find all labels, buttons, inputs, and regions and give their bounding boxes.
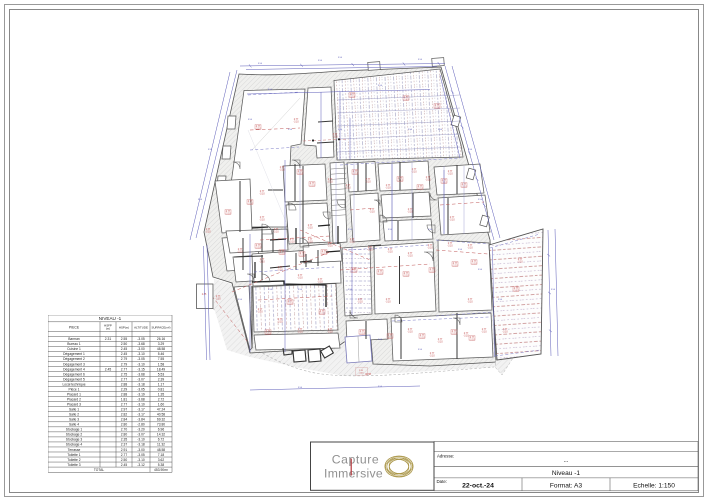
svg-text:-3.07: -3.07: [137, 377, 145, 381]
svg-text:-3.10: -3.10: [277, 270, 283, 272]
svg-text:2.77: 2.77: [121, 367, 128, 371]
svg-text:Toilette 3: Toilette 3: [67, 463, 80, 467]
svg-text:Echelle: 1:150: Echelle: 1:150: [633, 483, 675, 490]
svg-text:TOTAL: TOTAL: [94, 468, 104, 472]
svg-text:2.77: 2.77: [121, 453, 128, 457]
svg-text:1.81: 1.81: [121, 397, 128, 401]
svg-text:-3.20: -3.20: [137, 428, 145, 432]
svg-text:-3.10: -3.10: [307, 242, 313, 244]
svg-text:-3.10: -3.10: [345, 188, 351, 190]
svg-text:-3.10: -3.10: [513, 291, 519, 293]
svg-text:-3.10: -3.10: [287, 304, 293, 306]
svg-text:Placard 3: Placard 3: [67, 402, 81, 406]
svg-text:-3.10: -3.10: [247, 204, 253, 206]
svg-text:-3.10: -3.10: [279, 254, 285, 256]
svg-text:3.50: 3.50: [318, 60, 323, 62]
svg-text:-3.68: -3.68: [137, 397, 145, 401]
svg-text:NIVEAU -1: NIVEAU -1: [99, 316, 122, 321]
svg-text:-3.05: -3.05: [137, 357, 145, 361]
svg-text:3.50: 3.50: [198, 199, 203, 201]
svg-text:-3.10: -3.10: [365, 182, 371, 184]
svg-text:-3.10: -3.10: [293, 122, 299, 124]
svg-text:1.35: 1.35: [158, 392, 165, 396]
svg-text:-3.10: -3.10: [437, 342, 443, 344]
svg-text:0.81: 0.81: [158, 387, 165, 391]
svg-text:3.62: 3.62: [158, 458, 165, 462]
svg-text:-3.10: -3.10: [367, 250, 373, 252]
svg-text:3.50: 3.50: [208, 149, 213, 151]
svg-text:-3.10: -3.10: [297, 174, 303, 176]
svg-text:-2.80: -2.80: [137, 423, 145, 427]
svg-text:69.32: 69.32: [157, 418, 165, 422]
svg-text:-3.10: -3.10: [352, 174, 358, 176]
svg-text:-3.10: -3.10: [425, 180, 431, 182]
svg-text:-3.10: -3.10: [259, 262, 265, 264]
svg-text:2.88: 2.88: [121, 382, 128, 386]
svg-text:-3.10: -3.10: [259, 194, 265, 196]
svg-text:SURFACE(m²): SURFACE(m²): [152, 326, 171, 330]
svg-text:2.75: 2.75: [121, 372, 128, 376]
svg-text:-3.05: -3.05: [137, 453, 145, 457]
svg-text:2.55: 2.55: [121, 337, 128, 341]
svg-text:Salle 4: Salle 4: [69, 423, 79, 427]
svg-text:22-oct.-24: 22-oct.-24: [462, 483, 494, 490]
svg-text:7.55: 7.55: [158, 357, 165, 361]
svg-text:-3.10: -3.10: [481, 332, 487, 334]
svg-text:3.50: 3.50: [468, 149, 473, 151]
svg-text:-3.10: -3.10: [137, 438, 145, 442]
svg-text:-3.10: -3.10: [321, 254, 327, 256]
svg-text:Niveau -1: Niveau -1: [552, 470, 581, 477]
svg-text:2.97: 2.97: [121, 408, 128, 412]
svg-text:2.80: 2.80: [121, 423, 128, 427]
svg-text:14.32: 14.32: [157, 433, 165, 437]
svg-text:3.50: 3.50: [258, 63, 263, 65]
svg-text:-3.10: -3.10: [369, 212, 375, 214]
svg-text:-3.10: -3.10: [137, 352, 145, 356]
svg-text:-3.10: -3.10: [517, 262, 523, 264]
svg-text:-3.10: -3.10: [297, 332, 303, 334]
svg-text:-3.10: -3.10: [447, 246, 453, 248]
svg-text:-3.10: -3.10: [277, 322, 283, 324]
svg-text:-3.10: -3.10: [417, 189, 423, 191]
svg-text:-3.84: -3.84: [137, 418, 145, 422]
svg-text:-3.10: -3.10: [255, 248, 261, 250]
svg-text:Dégagement 6: Dégagement 6: [63, 372, 85, 376]
svg-text:Bureau 1: Bureau 1: [67, 342, 81, 346]
svg-text:2.45: 2.45: [121, 463, 128, 467]
svg-text:Toilette 1: Toilette 1: [67, 453, 80, 457]
svg-text:Salle 3: Salle 3: [69, 418, 79, 422]
svg-text:2.70: 2.70: [121, 428, 128, 432]
svg-text:-3.10: -3.10: [137, 458, 145, 462]
svg-text:-3.10: -3.10: [309, 186, 315, 188]
svg-text:-3.10: -3.10: [447, 174, 453, 176]
svg-text:2.88: 2.88: [121, 392, 128, 396]
svg-text:-3.10: -3.10: [403, 100, 409, 102]
svg-text:11.32: 11.32: [157, 443, 165, 447]
svg-text:-3.18: -3.18: [137, 382, 145, 386]
svg-text:-3.10: -3.10: [403, 276, 409, 278]
svg-text:-3.68: -3.68: [137, 372, 145, 376]
svg-text:-3.10: -3.10: [317, 282, 323, 284]
svg-text:73.80: 73.80: [157, 423, 165, 427]
svg-text:2.29: 2.29: [121, 387, 128, 391]
svg-text:-3.10: -3.10: [349, 97, 355, 99]
svg-text:-3.10: -3.10: [434, 108, 440, 110]
svg-text:-3.10: -3.10: [387, 252, 393, 254]
svg-text:-3.10: -3.10: [332, 137, 338, 139]
svg-text:48.58: 48.58: [365, 374, 371, 376]
svg-text:ALTITUDE: ALTITUDE: [134, 326, 148, 330]
svg-text:-3.10: -3.10: [407, 256, 413, 258]
svg-text:-3.18: -3.18: [137, 443, 145, 447]
svg-text:2.79: 2.79: [121, 357, 128, 361]
svg-text:-3.10: -3.10: [327, 246, 333, 248]
svg-text:PIECE: PIECE: [69, 326, 80, 330]
svg-text:5.53: 5.53: [158, 372, 165, 376]
svg-text:Placard 2: Placard 2: [67, 397, 81, 401]
svg-text:Stockage 2: Stockage 2: [66, 433, 83, 437]
svg-text:-3.10: -3.10: [429, 356, 435, 358]
svg-text:-3.10: -3.10: [449, 220, 455, 222]
svg-text:1.17: 1.17: [158, 382, 165, 386]
svg-text:-3.10: -3.10: [205, 232, 211, 234]
svg-text:-3.10: -3.10: [419, 338, 425, 340]
svg-text:Stockage 1: Stockage 1: [66, 428, 83, 432]
svg-text:-3.10: -3.10: [137, 362, 145, 366]
svg-text:-3.10: -3.10: [255, 129, 261, 131]
svg-text:2.91: 2.91: [121, 448, 128, 452]
svg-text:2.45: 2.45: [105, 367, 112, 371]
svg-text:2.35: 2.35: [202, 294, 207, 296]
svg-text:-3.05: -3.05: [137, 337, 145, 341]
svg-text:-3.10: -3.10: [407, 212, 413, 214]
svg-text:-3.10: -3.10: [461, 187, 467, 189]
svg-text:-3.10: -3.10: [349, 242, 355, 244]
svg-text:-3.10: -3.10: [137, 402, 145, 406]
svg-text:-3.10: -3.10: [407, 332, 413, 334]
svg-text:-3.10: -3.10: [467, 248, 473, 250]
svg-text:2.79: 2.79: [121, 362, 128, 366]
svg-text:-3.10: -3.10: [297, 278, 303, 280]
svg-text:47.24: 47.24: [157, 408, 165, 412]
svg-text:6.72: 6.72: [158, 438, 165, 442]
svg-text:Dégagement 3: Dégagement 3: [63, 362, 85, 366]
svg-text:-3.07: -3.07: [137, 433, 145, 437]
svg-text:-3.10: -3.10: [387, 338, 393, 340]
svg-text:Date:: Date:: [437, 479, 448, 484]
svg-text:-3.10: -3.10: [259, 220, 265, 222]
svg-text:-3.10: -3.10: [377, 274, 383, 276]
svg-text:-3.68: -3.68: [137, 342, 145, 346]
svg-text:(m): (m): [106, 327, 110, 331]
svg-text:2.45: 2.45: [121, 347, 128, 351]
svg-text:3.50: 3.50: [551, 289, 556, 291]
svg-text:7.18: 7.18: [158, 453, 165, 457]
svg-text:-3.17: -3.17: [137, 413, 145, 417]
svg-text:453.90m²: 453.90m²: [154, 468, 169, 472]
svg-text:-3.10: -3.10: [429, 272, 435, 274]
svg-text:Format: A3: Format: A3: [550, 483, 583, 490]
svg-text:-3.10: -3.10: [411, 172, 417, 174]
svg-text:Dégagement 2: Dégagement 2: [63, 357, 85, 361]
svg-text:Stockage 4: Stockage 4: [66, 443, 83, 447]
svg-text:-3.10: -3.10: [469, 340, 475, 342]
svg-text:2.50: 2.50: [121, 458, 128, 462]
svg-text:Terrasse: Terrasse: [68, 448, 81, 452]
svg-text:48.58: 48.58: [157, 448, 165, 452]
svg-text:2.82: 2.82: [121, 413, 128, 417]
svg-text:-3.00: -3.00: [137, 448, 145, 452]
svg-text:Barman: Barman: [68, 337, 80, 341]
svg-text:2.72: 2.72: [158, 397, 165, 401]
svg-text:-3.10: -3.10: [451, 334, 457, 336]
svg-text:Salle 1: Salle 1: [69, 408, 79, 412]
svg-text:5.46: 5.46: [158, 352, 165, 356]
svg-text:2.39: 2.39: [158, 377, 165, 381]
svg-text:-3.10: -3.10: [359, 334, 365, 336]
svg-text:3.29: 3.29: [158, 342, 165, 346]
svg-text:Stockage 3: Stockage 3: [66, 438, 83, 442]
svg-text:1.58: 1.58: [158, 362, 165, 366]
svg-text:-3.19: -3.19: [137, 392, 145, 396]
svg-text:-3.10: -3.10: [357, 302, 363, 304]
svg-text:5.38: 5.38: [158, 463, 165, 467]
svg-text:-3.17: -3.17: [137, 408, 145, 412]
svg-text:Dégagement 4: Dégagement 4: [63, 367, 85, 371]
svg-text:18.49: 18.49: [157, 367, 165, 371]
svg-text:-3.10: -3.10: [471, 264, 477, 266]
svg-text:1.60: 1.60: [158, 402, 165, 406]
svg-text:-3.10: -3.10: [289, 242, 295, 244]
svg-text:-3.10: -3.10: [452, 266, 458, 268]
svg-text:-3.10: -3.10: [257, 312, 263, 314]
svg-text:-3.10: -3.10: [385, 302, 391, 304]
svg-text:Dégagement 1: Dégagement 1: [63, 352, 85, 356]
svg-text:-3.10: -3.10: [327, 182, 333, 184]
svg-text:-3.10: -3.10: [273, 232, 279, 234]
svg-text:-3.10: -3.10: [467, 302, 473, 304]
svg-text:3.50: 3.50: [418, 59, 423, 61]
svg-text:Local technique: Local technique: [62, 382, 85, 386]
svg-text:-3.10: -3.10: [427, 248, 433, 250]
svg-text:-3.10: -3.10: [237, 252, 243, 254]
svg-text:-3.10: -3.10: [215, 299, 221, 301]
svg-text:-3.10: -3.10: [397, 181, 403, 183]
svg-text:48.58: 48.58: [157, 347, 165, 351]
svg-text:-3.10: -3.10: [319, 314, 325, 316]
svg-text:-3.10: -3.10: [502, 332, 508, 334]
svg-text:2.84: 2.84: [121, 418, 128, 422]
svg-text:2.37: 2.37: [121, 443, 128, 447]
svg-text:-3.10: -3.10: [351, 272, 357, 274]
svg-text:-3.05: -3.05: [137, 387, 145, 391]
svg-text:Placard 1: Placard 1: [67, 392, 81, 396]
svg-text:2.31: 2.31: [105, 337, 112, 341]
svg-text:-3.10: -3.10: [463, 336, 469, 338]
svg-text:2.45: 2.45: [121, 352, 128, 356]
svg-text:-3.10: -3.10: [265, 334, 271, 336]
svg-text:-3.10: -3.10: [307, 228, 313, 230]
svg-text:Adresse:: Adresse:: [437, 454, 454, 459]
svg-text:Pièce 1: Pièce 1: [69, 387, 80, 391]
svg-text:Toilette 2: Toilette 2: [67, 458, 80, 462]
svg-text:2.77: 2.77: [121, 377, 128, 381]
svg-text:3.50: 3.50: [338, 57, 343, 59]
svg-text:-3.15: -3.15: [137, 367, 145, 371]
svg-text:2.77: 2.77: [121, 402, 128, 406]
svg-text:6.96: 6.96: [158, 428, 165, 432]
svg-text:HSP(m): HSP(m): [119, 326, 129, 330]
svg-text:2.35: 2.35: [121, 438, 128, 442]
svg-text:-3.10: -3.10: [441, 183, 447, 185]
svg-text:-3.00: -3.00: [137, 347, 145, 351]
svg-text:2.50: 2.50: [121, 342, 128, 346]
svg-text:-3.10: -3.10: [279, 170, 285, 172]
svg-text:-3.10: -3.10: [225, 214, 231, 216]
svg-text:26.16: 26.16: [157, 337, 165, 341]
svg-text:Immersive: Immersive: [324, 467, 383, 481]
svg-text:-3.10: -3.10: [299, 256, 305, 258]
svg-text:...: ...: [563, 458, 568, 464]
svg-text:-3.00: -3.00: [359, 373, 365, 375]
svg-text:Dégagement 5: Dégagement 5: [63, 377, 85, 381]
svg-text:Cuisine 1: Cuisine 1: [67, 347, 81, 351]
svg-text:-3.10: -3.10: [385, 188, 391, 190]
svg-text:Capture: Capture: [332, 453, 380, 467]
svg-text:2.80: 2.80: [121, 433, 128, 437]
svg-text:40.58: 40.58: [157, 413, 165, 417]
svg-text:-3.10: -3.10: [327, 332, 333, 334]
svg-text:-3.12: -3.12: [137, 463, 145, 467]
svg-text:Salle 2: Salle 2: [69, 413, 79, 417]
